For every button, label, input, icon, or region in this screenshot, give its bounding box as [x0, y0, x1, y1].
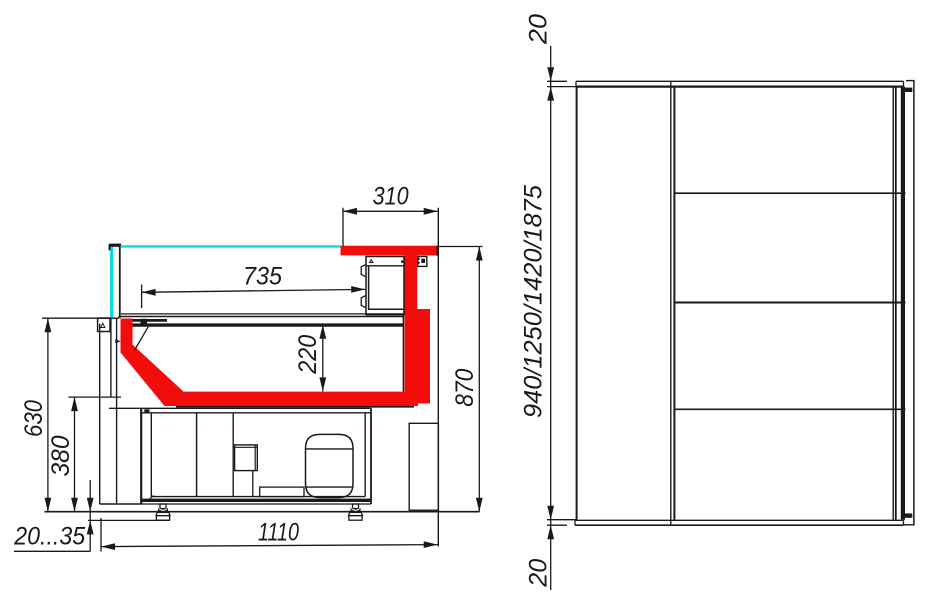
svg-text:20: 20	[525, 14, 553, 45]
svg-text:20: 20	[524, 559, 552, 588]
svg-text:20...35: 20...35	[13, 523, 85, 551]
svg-text:310: 310	[373, 182, 409, 210]
svg-text:940/1250/1420/1875: 940/1250/1420/1875	[520, 185, 548, 418]
svg-text:870: 870	[451, 369, 479, 407]
svg-text:380: 380	[47, 435, 75, 476]
svg-text:1110: 1110	[258, 519, 299, 547]
svg-text:735: 735	[243, 263, 282, 291]
svg-text:220: 220	[294, 335, 322, 375]
svg-text:630: 630	[20, 400, 48, 437]
